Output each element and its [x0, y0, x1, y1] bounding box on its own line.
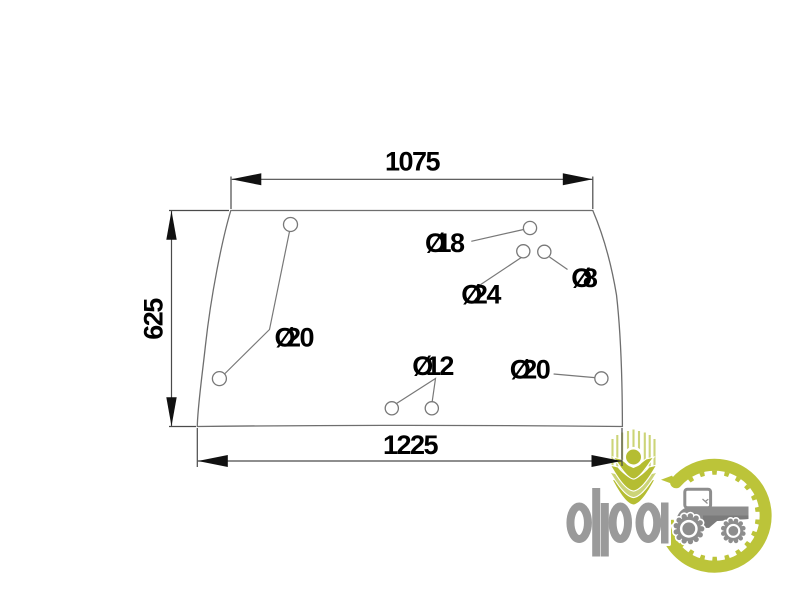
- svg-text:Ø8: Ø8: [571, 263, 598, 293]
- svg-text:1075: 1075: [385, 147, 441, 177]
- svg-text:625: 625: [139, 298, 169, 340]
- svg-text:Ø12: Ø12: [412, 351, 453, 381]
- svg-text:Ø20: Ø20: [510, 355, 550, 385]
- svg-text:1225: 1225: [383, 430, 439, 460]
- svg-text:Ø24: Ø24: [461, 279, 501, 309]
- svg-text:Ø20: Ø20: [275, 323, 314, 353]
- svg-text:Ø18: Ø18: [425, 228, 465, 258]
